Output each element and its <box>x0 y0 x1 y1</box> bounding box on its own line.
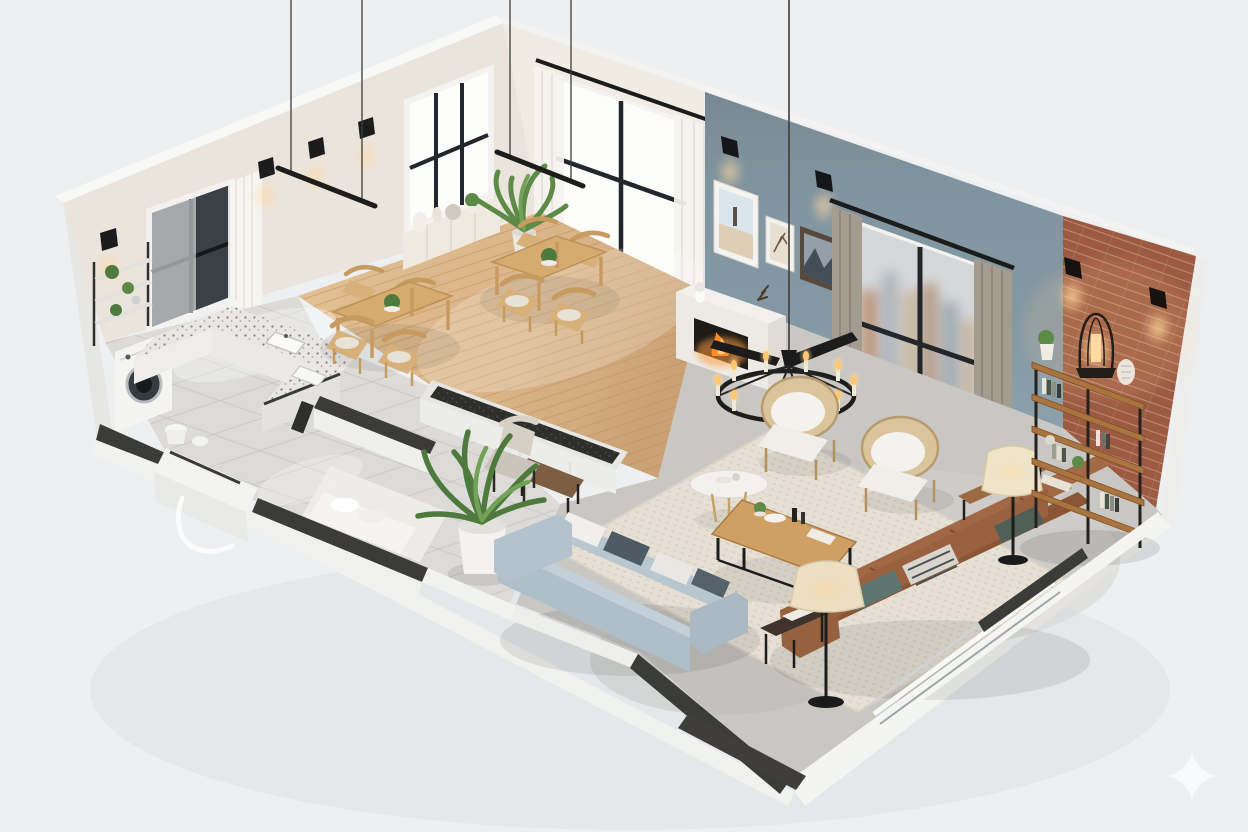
white-stool-base <box>166 430 186 444</box>
isometric-apartment-render <box>0 0 1248 832</box>
plant-pot <box>468 206 477 213</box>
centerpiece-bowl <box>541 260 557 266</box>
starfish-decor <box>1045 435 1055 445</box>
washer-knob <box>126 355 131 360</box>
glass-jar <box>132 296 141 305</box>
plant <box>122 282 134 294</box>
apartment-render-canvas <box>0 0 1248 832</box>
decor-plate <box>716 477 732 484</box>
plant <box>105 265 119 279</box>
plant-vase <box>754 512 766 517</box>
lantern-base <box>1076 368 1116 378</box>
chair-cushion <box>387 351 411 363</box>
lamp-base <box>808 696 844 708</box>
plant <box>1072 456 1084 468</box>
vase <box>413 212 427 232</box>
sconce-glow <box>1056 276 1088 316</box>
bench-pillow <box>358 509 386 523</box>
chair-cushion <box>335 337 359 349</box>
sconce-glow <box>352 139 380 173</box>
plant <box>1038 330 1054 346</box>
decor-bowl <box>764 514 786 523</box>
jar <box>101 325 111 335</box>
sheer-curtain <box>152 197 196 327</box>
chair-cushion <box>505 295 529 307</box>
marble-top <box>690 470 768 498</box>
white-vase <box>192 436 208 446</box>
chair-cushion <box>557 309 581 321</box>
sconce-glow <box>252 179 280 213</box>
mantel-flowers <box>695 282 705 292</box>
decor-teapot <box>732 473 740 481</box>
plant-pot <box>1040 344 1054 360</box>
plant <box>110 304 122 316</box>
bench-pillow <box>331 498 359 512</box>
lamp-glow <box>803 576 851 604</box>
lantern-bulb <box>1091 334 1101 362</box>
faucet <box>284 334 288 338</box>
bottle <box>801 512 805 524</box>
bottle <box>792 508 797 522</box>
lamp-base <box>998 555 1028 565</box>
vase <box>432 207 442 223</box>
sconce-glow <box>1142 308 1174 348</box>
art-lighthouse <box>733 207 737 226</box>
stone-decor <box>445 204 461 220</box>
lamp-glow <box>992 460 1032 484</box>
centerpiece-bowl <box>384 306 400 312</box>
